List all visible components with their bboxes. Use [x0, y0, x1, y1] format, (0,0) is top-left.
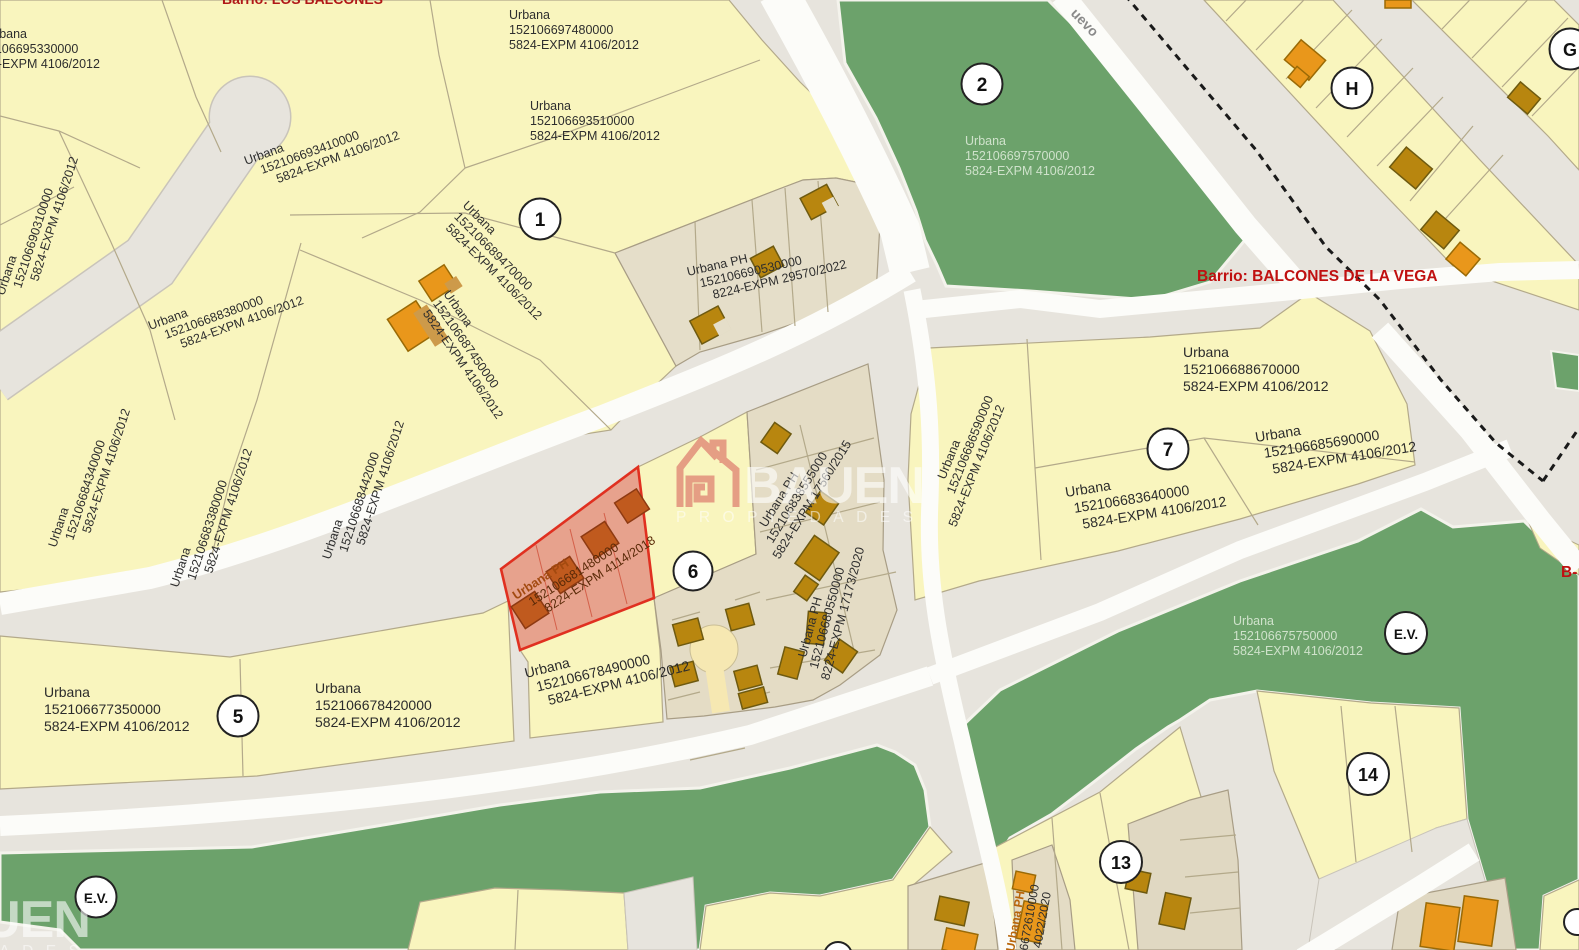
- svg-text:PROPIEDADES: PROPIEDADES: [0, 943, 91, 950]
- svg-text:PROPIEDADES: PROPIEDADES: [676, 509, 925, 526]
- svg-text:BAUEN: BAUEN: [744, 457, 924, 515]
- svg-text:Urbana: Urbana: [44, 684, 90, 700]
- svg-text:14: 14: [1358, 765, 1378, 785]
- svg-text:6: 6: [688, 562, 699, 583]
- svg-text:Urbana: Urbana: [1233, 614, 1274, 628]
- svg-text:5824-EXPM 4106/2012: 5824-EXPM 4106/2012: [44, 718, 190, 734]
- svg-text:152106678420000: 152106678420000: [315, 697, 432, 713]
- svg-text:Urbana: Urbana: [965, 134, 1006, 148]
- svg-text:B-: B-: [1561, 564, 1577, 581]
- svg-text:Urbana: Urbana: [0, 27, 27, 41]
- svg-text:152106695330000: 152106695330000: [0, 42, 78, 56]
- svg-text:5824-EXPM 4106/2012: 5824-EXPM 4106/2012: [965, 164, 1095, 178]
- svg-text:152106677350000: 152106677350000: [44, 701, 161, 717]
- svg-text:Barrio: BALCONES DE LA VEGA: Barrio: BALCONES DE LA VEGA: [1197, 268, 1438, 285]
- svg-text:H: H: [1346, 79, 1359, 99]
- svg-text:Urbana: Urbana: [1183, 344, 1229, 360]
- svg-text:5824-EXPM 4106/2012: 5824-EXPM 4106/2012: [1183, 378, 1329, 394]
- svg-text:Urbana: Urbana: [509, 8, 550, 22]
- svg-text:E.V.: E.V.: [1394, 627, 1418, 642]
- svg-text:5: 5: [233, 707, 244, 728]
- svg-text:5824-EXPM 4106/2012: 5824-EXPM 4106/2012: [0, 57, 100, 71]
- svg-text:5824-EXPM 4106/2012: 5824-EXPM 4106/2012: [509, 38, 639, 52]
- svg-text:BAUEN: BAUEN: [0, 891, 90, 949]
- svg-text:7: 7: [1163, 440, 1174, 461]
- svg-text:152106693510000: 152106693510000: [530, 114, 634, 128]
- svg-text:5824-EXPM 4106/2012: 5824-EXPM 4106/2012: [315, 714, 461, 730]
- svg-text:G: G: [1563, 40, 1577, 60]
- svg-text:Barrio: LOS BALCONES: Barrio: LOS BALCONES: [222, 0, 383, 7]
- svg-text:152106697480000: 152106697480000: [509, 23, 613, 37]
- svg-text:5824-EXPM 4106/2012: 5824-EXPM 4106/2012: [1233, 644, 1363, 658]
- svg-text:5824-EXPM 4106/2012: 5824-EXPM 4106/2012: [530, 129, 660, 143]
- svg-text:13: 13: [1111, 853, 1131, 873]
- svg-text:1: 1: [535, 210, 546, 231]
- svg-text:152106697570000: 152106697570000: [965, 149, 1069, 163]
- svg-text:2: 2: [977, 75, 988, 96]
- svg-text:Urbana: Urbana: [530, 99, 571, 113]
- svg-text:152106688670000: 152106688670000: [1183, 361, 1300, 377]
- svg-text:152106675750000: 152106675750000: [1233, 629, 1337, 643]
- svg-text:Urbana: Urbana: [315, 680, 361, 696]
